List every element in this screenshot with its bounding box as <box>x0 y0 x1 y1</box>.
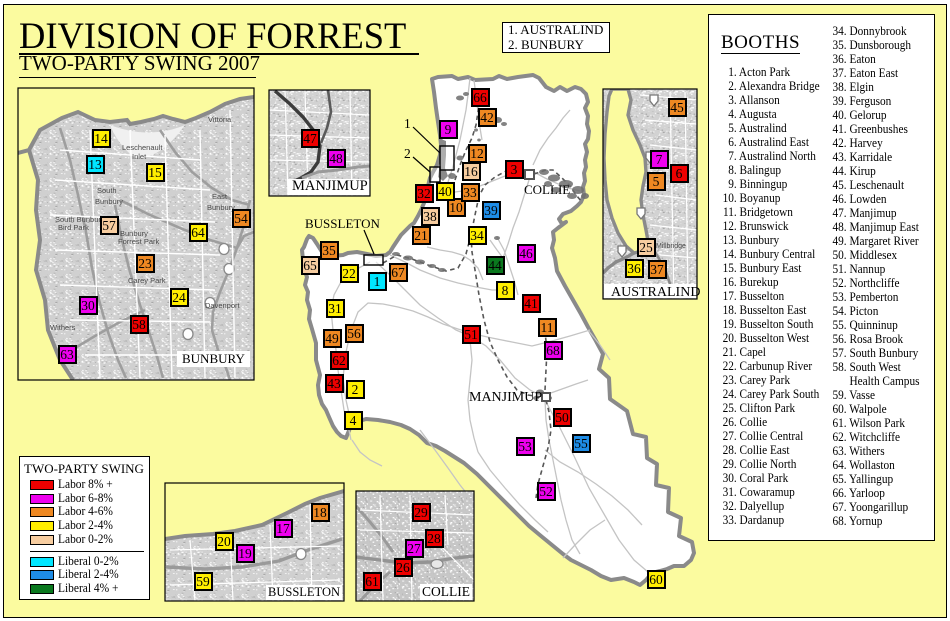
svg-text:Leschenault: Leschenault <box>122 143 163 152</box>
svg-text:South: South <box>97 186 117 195</box>
svg-text:Vittoria: Vittoria <box>208 115 232 124</box>
svg-text:Bird Park: Bird Park <box>58 223 89 232</box>
svg-text:East: East <box>212 192 228 201</box>
svg-text:Forrest Park: Forrest Park <box>118 237 160 246</box>
svg-text:Withers: Withers <box>50 323 76 332</box>
svg-text:Inlet: Inlet <box>132 152 147 161</box>
svg-text:Carey Park: Carey Park <box>128 276 166 285</box>
svg-text:Millbridge: Millbridge <box>656 243 686 250</box>
svg-text:Bunbury: Bunbury <box>95 197 123 206</box>
svg-text:Davenport: Davenport <box>205 301 241 310</box>
